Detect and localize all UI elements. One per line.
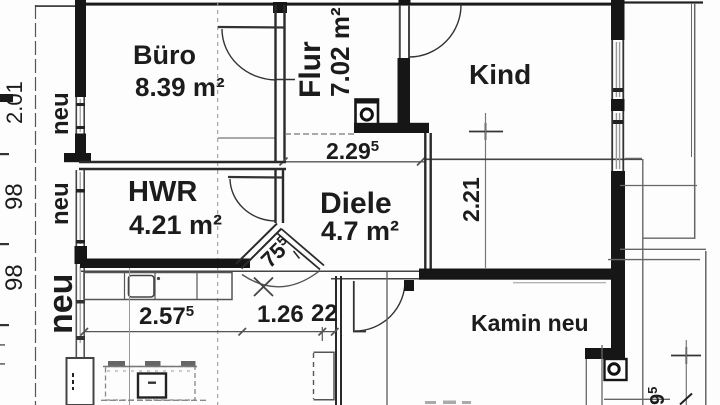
svg-text:neu: neu bbox=[42, 274, 80, 334]
svg-text:Büro: Büro bbox=[133, 40, 196, 70]
svg-text:7.02 m²: 7.02 m² bbox=[325, 7, 355, 97]
svg-text:2.01: 2.01 bbox=[2, 81, 27, 124]
svg-text:1.26: 1.26 bbox=[257, 301, 304, 328]
svg-text:neu: neu bbox=[47, 92, 74, 135]
svg-text:2.21: 2.21 bbox=[458, 177, 484, 222]
svg-text:8.39 m²: 8.39 m² bbox=[135, 72, 225, 102]
svg-text:98: 98 bbox=[1, 264, 28, 291]
svg-text:neu: neu bbox=[47, 182, 74, 225]
svg-text:4.21 m²: 4.21 m² bbox=[129, 210, 222, 240]
svg-text:Flur: Flur bbox=[294, 41, 327, 98]
svg-text:22: 22 bbox=[311, 300, 338, 327]
svg-text:4.7 m²: 4.7 m² bbox=[321, 216, 399, 246]
svg-text:HWR: HWR bbox=[128, 176, 197, 208]
svg-text:Kamin neu: Kamin neu bbox=[471, 310, 589, 336]
svg-text:Kind: Kind bbox=[469, 59, 531, 90]
svg-text:98: 98 bbox=[1, 183, 28, 210]
